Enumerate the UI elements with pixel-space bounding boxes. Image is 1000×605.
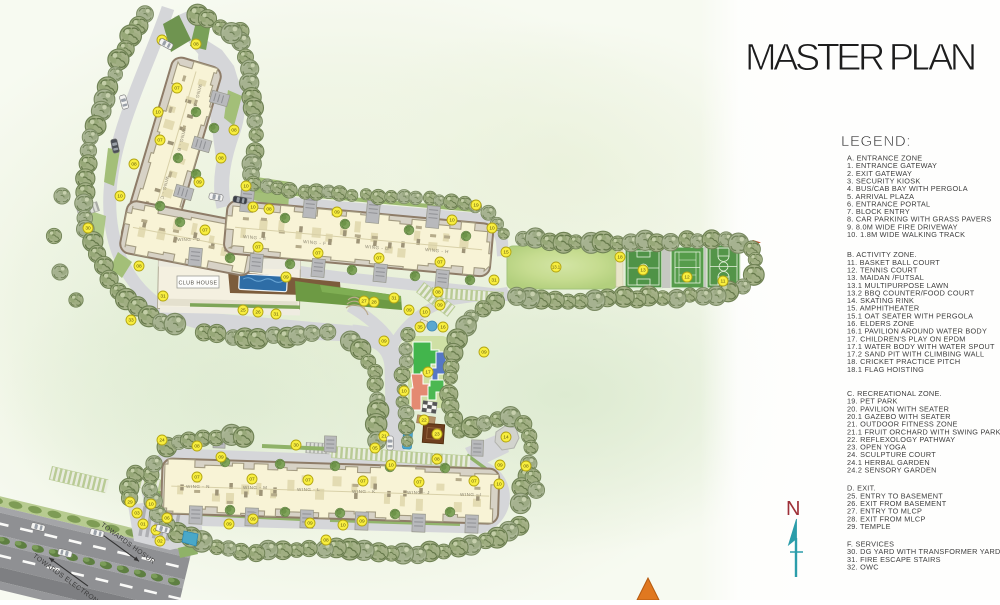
svg-text:08: 08 [193, 42, 199, 48]
svg-text:10: 10 [250, 205, 256, 211]
svg-text:22: 22 [421, 418, 427, 424]
svg-text:29: 29 [127, 500, 133, 506]
svg-text:07: 07 [360, 479, 366, 485]
svg-text:16: 16 [440, 325, 446, 331]
svg-text:23: 23 [434, 432, 440, 438]
svg-text:07: 07 [194, 475, 200, 481]
svg-text:24.2 SENSORY GARDEN: 24.2 SENSORY GARDEN [847, 466, 937, 475]
svg-text:08: 08 [434, 457, 440, 463]
svg-text:05: 05 [372, 446, 378, 452]
svg-text:WING - D: WING - D [177, 237, 200, 242]
svg-text:11: 11 [721, 279, 726, 285]
svg-text:07: 07 [471, 479, 477, 485]
svg-text:13: 13 [640, 268, 646, 274]
svg-text:08: 08 [131, 162, 137, 168]
svg-text:09: 09 [218, 455, 224, 461]
svg-text:10: 10 [422, 310, 428, 316]
svg-text:29. TEMPLE: 29. TEMPLE [847, 522, 891, 531]
svg-text:18.1 FLAG HOISTING: 18.1 FLAG HOISTING [847, 365, 924, 374]
svg-text:07: 07 [416, 480, 422, 486]
svg-text:WING - K: WING - K [352, 489, 376, 494]
svg-text:09: 09 [226, 522, 232, 528]
svg-text:27: 27 [361, 299, 367, 305]
svg-text:24: 24 [159, 438, 165, 444]
svg-text:07: 07 [157, 138, 163, 144]
svg-text:MASTER PLAN: MASTER PLAN [745, 37, 979, 79]
svg-text:31: 31 [391, 296, 397, 302]
svg-text:35: 35 [417, 325, 423, 331]
svg-text:28: 28 [371, 300, 377, 306]
svg-text:26: 26 [255, 310, 261, 316]
svg-text:10: 10 [496, 482, 502, 488]
svg-text:WING - I: WING - I [460, 492, 482, 497]
svg-text:10: 10 [489, 226, 495, 232]
svg-text:10: 10 [340, 523, 346, 529]
svg-text:32. OWC: 32. OWC [847, 563, 879, 572]
svg-text:10: 10 [155, 110, 161, 116]
svg-text:25: 25 [240, 308, 246, 314]
svg-text:07: 07 [315, 251, 321, 257]
svg-text:08: 08 [218, 156, 224, 162]
svg-text:31: 31 [491, 278, 497, 284]
svg-text:03: 03 [134, 511, 140, 517]
svg-text:09: 09 [196, 180, 202, 186]
svg-text:10. 1.8M WIDE WALKING TRACK: 10. 1.8M WIDE WALKING TRACK [847, 230, 965, 239]
svg-text:06: 06 [164, 516, 170, 522]
svg-text:10: 10 [243, 184, 249, 190]
svg-text:09: 09 [283, 275, 289, 281]
svg-text:09: 09 [307, 521, 313, 527]
svg-text:07: 07 [255, 245, 261, 251]
svg-text:08: 08 [136, 264, 142, 270]
svg-text:15: 15 [503, 250, 509, 256]
svg-text:30: 30 [293, 443, 299, 449]
svg-text:19: 19 [473, 203, 479, 209]
svg-text:08: 08 [194, 444, 200, 450]
svg-text:07: 07 [249, 477, 255, 483]
svg-text:09: 09 [406, 308, 412, 314]
svg-text:09: 09 [334, 210, 340, 216]
svg-text:WING - J: WING - J [407, 490, 430, 495]
svg-text:09: 09 [437, 303, 443, 309]
svg-text:14: 14 [503, 435, 509, 441]
svg-text:30: 30 [85, 226, 91, 232]
svg-text:31: 31 [273, 312, 279, 318]
svg-text:08: 08 [323, 538, 329, 544]
svg-text:09: 09 [381, 339, 387, 345]
svg-text:08: 08 [266, 207, 272, 213]
svg-text:10: 10 [449, 218, 455, 224]
svg-text:33: 33 [128, 318, 134, 324]
svg-text:31: 31 [160, 294, 166, 300]
svg-text:18: 18 [617, 255, 623, 261]
svg-text:08: 08 [523, 464, 529, 470]
svg-text:08: 08 [435, 290, 441, 296]
svg-text:17: 17 [425, 370, 431, 376]
svg-text:WING - L: WING - L [297, 487, 320, 492]
svg-text:LEGEND:: LEGEND: [841, 133, 911, 150]
svg-text:10: 10 [388, 463, 394, 469]
svg-text:WING - M: WING - M [243, 485, 267, 490]
svg-text:07: 07 [202, 228, 208, 234]
svg-text:12: 12 [684, 275, 690, 281]
svg-text:08: 08 [231, 128, 237, 134]
svg-text:21: 21 [381, 434, 387, 440]
svg-text:CLUB HOUSE: CLUB HOUSE [178, 281, 217, 287]
svg-text:WING - N: WING - N [186, 484, 210, 489]
svg-text:10: 10 [401, 389, 407, 395]
svg-text:07: 07 [437, 260, 443, 266]
svg-text:N: N [786, 498, 800, 520]
svg-text:02: 02 [157, 539, 163, 545]
svg-text:10: 10 [148, 502, 154, 508]
svg-text:09: 09 [359, 519, 365, 525]
svg-text:07: 07 [174, 86, 180, 92]
svg-text:09: 09 [497, 463, 503, 469]
svg-text:13.1: 13.1 [552, 265, 561, 270]
svg-text:07: 07 [305, 478, 311, 484]
svg-text:09: 09 [481, 350, 487, 356]
svg-text:09: 09 [250, 517, 256, 523]
svg-text:01: 01 [140, 522, 146, 528]
svg-text:10: 10 [117, 194, 123, 200]
svg-text:07: 07 [376, 256, 382, 262]
